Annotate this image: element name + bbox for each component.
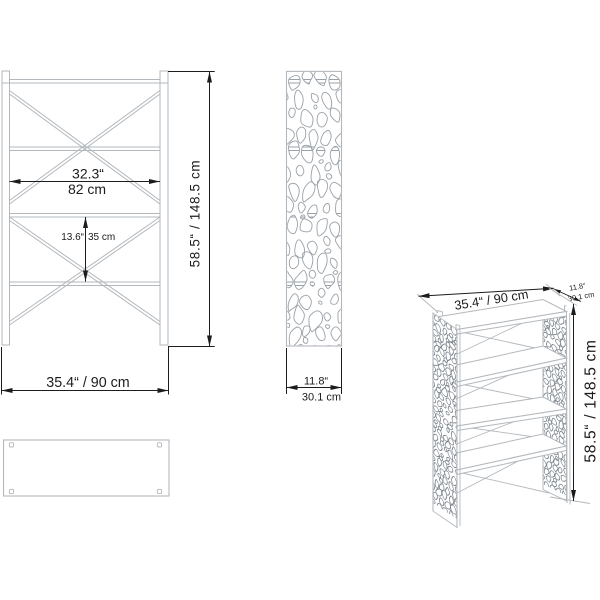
svg-text:32.3“: 32.3“ bbox=[72, 166, 104, 182]
svg-text:58.5“ / 148.5 cm: 58.5“ / 148.5 cm bbox=[188, 160, 203, 268]
svg-text:13.6“: 13.6“ bbox=[61, 232, 84, 243]
svg-text:82 cm: 82 cm bbox=[68, 181, 106, 197]
svg-text:35 cm: 35 cm bbox=[88, 232, 115, 243]
svg-text:58.5“ / 148.5 cm: 58.5“ / 148.5 cm bbox=[583, 339, 600, 462]
svg-text:30.1 cm: 30.1 cm bbox=[302, 392, 341, 404]
svg-text:35.4“ / 90 cm: 35.4“ / 90 cm bbox=[46, 375, 129, 391]
svg-text:11.8“: 11.8“ bbox=[304, 376, 329, 388]
